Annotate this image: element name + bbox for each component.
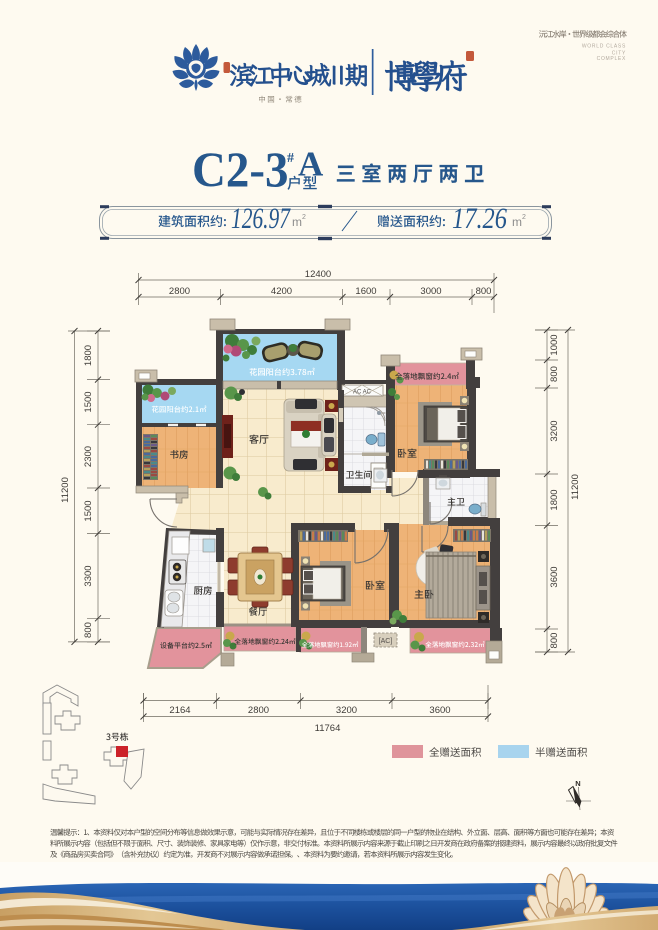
- svg-text:4200: 4200: [271, 286, 292, 297]
- svg-text:1600: 1600: [355, 286, 376, 297]
- svg-text:A: A: [298, 145, 324, 184]
- svg-text:[AC]: [AC]: [379, 638, 393, 645]
- svg-text:3600: 3600: [549, 566, 560, 587]
- svg-text:3600: 3600: [429, 705, 450, 716]
- svg-text:m: m: [292, 215, 302, 229]
- svg-text:1800: 1800: [549, 489, 560, 510]
- svg-text:2164: 2164: [169, 705, 190, 716]
- svg-text:3200: 3200: [549, 420, 560, 441]
- svg-text:800: 800: [549, 633, 560, 649]
- svg-text:3300: 3300: [83, 565, 94, 586]
- svg-text:2: 2: [522, 214, 526, 221]
- svg-text:1500: 1500: [83, 500, 94, 521]
- svg-text:11764: 11764: [315, 723, 341, 734]
- svg-text:1800: 1800: [83, 345, 94, 366]
- svg-text:1000: 1000: [549, 334, 560, 355]
- svg-text:WORLD CLASS: WORLD CLASS: [582, 44, 626, 50]
- svg-text:17.26: 17.26: [452, 202, 507, 235]
- svg-text:3200: 3200: [336, 705, 357, 716]
- svg-text:3000: 3000: [420, 286, 441, 297]
- svg-text:800: 800: [83, 622, 94, 638]
- svg-text:1500: 1500: [83, 391, 94, 412]
- svg-text:AC AC: AC AC: [353, 390, 372, 396]
- svg-text:2: 2: [302, 214, 306, 221]
- svg-text:#: #: [287, 151, 294, 166]
- svg-text:C2-3: C2-3: [192, 141, 289, 197]
- svg-text:2800: 2800: [169, 286, 190, 297]
- svg-text:N: N: [575, 779, 580, 788]
- svg-text:COMPLEX: COMPLEX: [597, 56, 626, 62]
- svg-text:2800: 2800: [248, 705, 269, 716]
- svg-text:800: 800: [549, 366, 560, 382]
- svg-text:800: 800: [476, 286, 492, 297]
- svg-text:12400: 12400: [305, 269, 331, 280]
- svg-text:m: m: [512, 215, 522, 229]
- svg-text:2300: 2300: [83, 446, 94, 467]
- svg-text:11200: 11200: [60, 477, 71, 503]
- svg-text:126.97: 126.97: [231, 202, 291, 235]
- svg-text:11200: 11200: [570, 474, 581, 500]
